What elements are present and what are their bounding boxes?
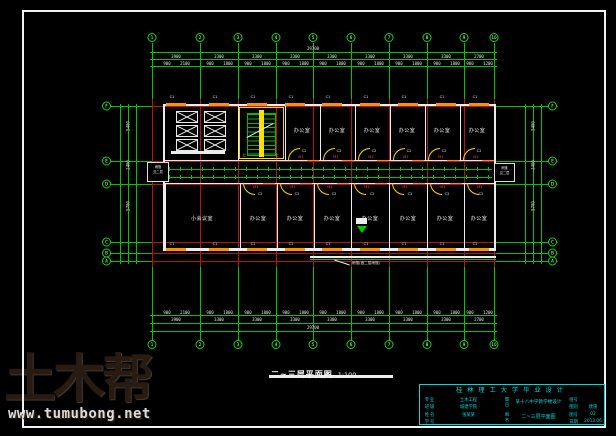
window [285,248,305,251]
door-tag: M1 [440,185,445,189]
partition-wall [427,184,428,249]
door-tag: M1 [327,185,332,189]
room-label: 办公室 [469,127,486,134]
titleblock-label: 图别 [566,404,581,410]
frame-left [22,10,24,428]
dim-text: 1800 [412,61,422,66]
witness-line [152,267,153,341]
axis-bubble: D [102,180,111,189]
frame-bottom [22,426,606,428]
window-tag: C1 [364,95,369,99]
axis-bubble: F [548,102,557,111]
window-tag: C1 [289,95,294,99]
axis-bubble: E [102,157,111,166]
dim-text: 3300 [403,54,413,59]
dim-text: 2700 [474,54,484,59]
stair-up-label: 上 [275,153,279,158]
titleblock-label: 班级 [419,404,441,410]
door-tag: M1 [364,185,369,189]
frame-top [22,10,605,12]
axis-bubble: F [102,102,111,111]
room-label: 小会议室 [191,215,213,222]
witness-line [276,267,277,341]
titleblock-label: 图号 [566,412,581,418]
door-tag: M1 [290,185,295,189]
axis-bubble: C [548,238,557,247]
window-tag: C1 [289,242,294,246]
partition-wall [277,184,278,249]
window [285,103,305,106]
toilet-stall [204,139,226,151]
dim-text: 3300 [214,54,224,59]
axis-bubble: 5 [309,33,318,42]
axis-bubble: 3 [234,340,243,349]
dim-text: 3300 [441,317,451,322]
window [398,103,418,106]
window-tag: C1 [213,95,218,99]
toilet-stall [204,125,226,137]
axis-bubble: A [548,257,557,266]
axis-bubble: 1 [148,340,157,349]
axis-bubble: 4 [272,33,281,42]
axis-bubble: A [102,257,111,266]
titleblock-value: 城建学院 [441,404,496,410]
window-tag: C1 [440,95,445,99]
titleblock-label: 日期 [566,419,581,425]
titleblock-label: 组号 [566,397,581,403]
titleblock-label: 姓名 [419,412,441,418]
toilet-counter [171,151,225,154]
axis-bubble: 3 [234,33,243,42]
door-tag: M1 [253,185,258,189]
window-tag: C2 [479,192,484,196]
window [166,103,186,106]
window [360,248,380,251]
dim-text: 3300 [252,54,262,59]
dim-text: 900 [319,61,326,66]
window-tag: C1 [326,95,331,99]
dim-text: 1800 [336,310,346,315]
dim-text: 1800 [261,310,271,315]
dim-total-top: 29700 [307,46,319,51]
witness-line [427,267,428,341]
dim-text: 3300 [214,317,224,322]
window [166,248,186,251]
partition-wall [314,184,315,249]
partition-wall [460,106,461,160]
witness-line [351,267,352,341]
annotation-box-east: 雨篷 见二层 [494,163,515,182]
titleblock-row: 学号 [419,418,496,426]
window [450,183,462,185]
room-label: 办公室 [434,127,451,134]
dim-text: 5700 [126,201,131,211]
axis-bubble: 7 [385,33,394,42]
window [263,183,275,185]
axis-bubble: 9 [460,33,469,42]
window-tag: C2 [408,192,413,196]
dim-text: 900 [244,310,251,315]
titleblock-label: 专业 [419,397,441,403]
room-label: 办公室 [324,215,341,222]
window-tag: C1 [170,95,175,99]
dim-text: 2700 [474,317,484,322]
dim-text: 5400 [531,121,536,131]
dim-text: 3300 [365,317,375,322]
titleblock-row: 班级 城建学院 [419,403,496,411]
window [209,248,229,251]
dim-text: 2100 [180,61,190,66]
window [209,103,229,106]
annotation-text: 见二层 [495,171,514,176]
titleblock-row: 组号 [566,396,605,404]
grid-row-line [118,242,558,243]
dim-text: 1800 [261,61,271,66]
partition-wall [240,184,241,249]
titleblock-row: 图号 02 [566,411,605,419]
dim-text: 3300 [290,317,300,322]
drawing-title: 二~三层平面图1:100 [271,362,356,381]
titleblock-value: 2013.06 [581,419,605,424]
witness-line [494,267,495,341]
window [436,248,456,251]
dim-text: 900 [163,61,170,66]
titleblock-value: 张某某 [441,412,496,418]
axis-bubble: 10 [490,33,499,42]
window [469,103,489,106]
window-tag: C1 [251,242,256,246]
partition-wall [389,184,390,249]
partition-wall [464,184,465,249]
room-label: 办公室 [294,127,311,134]
window [398,248,418,251]
partition-wall [355,106,356,160]
watermark-logo: 土木帮 [4,354,151,406]
partition-wall [165,184,166,249]
dim-text: 900 [282,310,289,315]
dim-text: 3300 [403,317,413,322]
window [247,103,267,106]
door-tag: M1 [298,155,303,159]
window [322,248,342,251]
window [447,160,459,162]
stair-rail [259,110,264,157]
corridor-chain [158,167,492,171]
window-tag: C2 [407,149,412,153]
door-tag: M1 [403,155,408,159]
door-tag: M1 [477,185,482,189]
room-label: 办公室 [399,127,416,134]
dim-text: 900 [206,310,213,315]
window [412,160,424,162]
dim-line [150,66,497,67]
dim-text: 1800 [299,310,309,315]
toilet-stall [176,139,198,151]
window [337,183,349,185]
titleblock-value: 02 [581,412,605,417]
axis-connector [496,106,553,107]
partition-wall [320,106,321,160]
axis-bubble: 5 [309,340,318,349]
partition-wall [285,106,286,160]
window-tag: C1 [251,95,256,99]
canopy-note: 雨篷(做二层雨篷) [352,261,380,266]
window-tag: C1 [440,242,445,246]
window-tag: C1 [326,242,331,246]
titleblock-tag-drawing: 图名 [497,410,510,425]
dim-text: 900 [433,61,440,66]
dim-text: 1800 [223,310,233,315]
partition-wall [425,106,426,160]
dim-text: 1800 [299,61,309,66]
titleblock-value: 建施 [581,404,605,410]
window-tag: C2 [445,192,450,196]
window-tag: C2 [370,192,375,196]
dim-text: 5700 [531,201,536,211]
door-tag: M1 [473,155,478,159]
room-label: 办公室 [329,127,346,134]
toilet-stall [204,111,226,123]
title-underline [269,375,393,378]
window-tag: C1 [213,242,218,246]
axis-connector [496,161,553,162]
annotation-text: 见二层 [148,170,168,175]
room-label: 办公室 [437,215,454,222]
axis-bubble: 6 [347,33,356,42]
axis-bubble: D [548,180,557,189]
axis-bubble: 1 [148,33,157,42]
door-tag: M1 [333,155,338,159]
dim-text: 3300 [252,317,262,322]
axis-bubble: 9 [460,340,469,349]
dim-total-bottom: 29700 [307,325,319,330]
window-tag: C1 [473,95,478,99]
axis-bubble: 10 [490,340,499,349]
room-label: 办公室 [362,215,379,222]
dim-text: 3300 [327,54,337,59]
window-tag: C2 [258,192,263,196]
titleblock-tag-project: 题目 [497,395,510,410]
door-tag: M1 [402,185,407,189]
axis-bubble: C [102,238,111,247]
dim-text: 3300 [290,54,300,59]
room-label: 办公室 [471,215,488,222]
dim-text: 3300 [327,317,337,322]
window [436,103,456,106]
titleblock-row: 姓名 张某某 [419,411,496,419]
window [360,103,380,106]
door-tag: M1 [438,155,443,159]
titleblock-header: 桂林理工大学毕业设计 [419,385,605,394]
window-tag: C2 [332,192,337,196]
window [469,248,489,251]
window [247,248,267,251]
window [307,160,319,162]
dim-text: 900 [163,310,170,315]
titleblock-drawing-name: 二~三层平面图 [511,410,566,425]
dim-text: 900 [433,310,440,315]
dim-text: 900 [282,61,289,66]
window-tag: C2 [477,149,482,153]
dim-text: 900 [357,61,364,66]
partition-wall [390,106,391,160]
dim-text: 1800 [412,310,422,315]
dim-text: 900 [466,310,473,315]
room-label: 办公室 [250,215,267,222]
window-tag: C1 [364,242,369,246]
axis-connector [496,253,553,254]
dim-text: 900 [395,310,402,315]
window-tag: C2 [337,149,342,153]
titleblock-label: 学号 [419,419,441,425]
dim-line [150,323,497,324]
witness-line [464,267,465,341]
window-tag: C1 [402,242,407,246]
window-tag: C1 [170,242,175,246]
window-tag: C2 [372,149,377,153]
dim-text: 2400 [531,160,536,170]
witness-line [389,267,390,341]
annotation-box-west: 雨篷 见二层 [147,162,169,182]
witness-line [313,267,314,341]
dim-text: 1800 [336,61,346,66]
grid-row-line [118,253,558,254]
dim-text: 1800 [374,61,384,66]
dim-text: 2100 [180,310,190,315]
dim-text: 1800 [450,310,460,315]
dim-text: 900 [244,61,251,66]
witness-line [200,267,201,341]
corridor-chain [158,175,492,179]
witness-line [238,267,239,341]
entrance-arrow [357,226,367,233]
window-tag: C2 [442,149,447,153]
titleblock-project-name: 某十八中学教学楼设计 [511,395,566,410]
window-tag: C2 [302,149,307,153]
room-label: 办公室 [287,215,304,222]
titleblock-row: 日期 2013.06 [566,418,605,426]
dim-text: 1200 [483,310,493,315]
stair-up-label: 上 [242,153,246,158]
toilet-stall [176,111,198,123]
dim-line [150,59,497,60]
dim-text: 900 [395,61,402,66]
toilet-stall [176,125,198,137]
window [322,103,342,106]
watermark-url: www.tumubong.net [8,406,151,422]
canopy-edge [310,256,496,257]
room-label: 办公室 [364,127,381,134]
dim-text: 3300 [365,54,375,59]
dim-text: 5400 [126,121,131,131]
axis-bubble: 6 [347,340,356,349]
axis-bubble: 2 [196,33,205,42]
titleblock-row: 专业 土木工程 [419,396,496,404]
window [375,183,387,185]
dim-text: 1800 [450,61,460,66]
frame-right [604,10,606,428]
dim-text: 1800 [374,310,384,315]
dim-text: 1200 [483,61,493,66]
dim-text: 3900 [171,317,181,322]
window-tag: C2 [295,192,300,196]
partition-wall [351,184,352,249]
axis-bubble: E [548,157,557,166]
dim-text: 1800 [223,61,233,66]
titleblock-value: 土木工程 [441,397,496,403]
window [482,160,494,162]
room-label: 办公室 [400,215,417,222]
dim-text: 3300 [441,54,451,59]
axis-bubble: 8 [423,340,432,349]
axis-connector [496,261,553,262]
window [377,160,389,162]
axis-bubble: 7 [385,340,394,349]
window-tag: C1 [473,242,478,246]
dim-text: 2400 [126,160,131,170]
dim-text: 900 [357,310,364,315]
partition-wall [163,106,164,160]
axis-bubble: 2 [196,340,205,349]
axis-connector [496,184,553,185]
window [342,160,354,162]
window [413,183,425,185]
axis-bubble: 8 [423,33,432,42]
dim-text: 900 [206,61,213,66]
axis-bubble: 4 [272,340,281,349]
dim-text: 900 [319,310,326,315]
door-tag: M1 [368,155,373,159]
window-tag: C1 [402,95,407,99]
cad-canvas: 12345678910 12345678910 FEDCBA FEDCBA 29… [0,0,616,436]
axis-connector [496,242,553,243]
dim-text: 900 [466,61,473,66]
window [300,183,312,185]
dim-line [150,331,497,332]
dim-text: 3900 [171,54,181,59]
titleblock-row: 图别 建施 [566,403,605,411]
